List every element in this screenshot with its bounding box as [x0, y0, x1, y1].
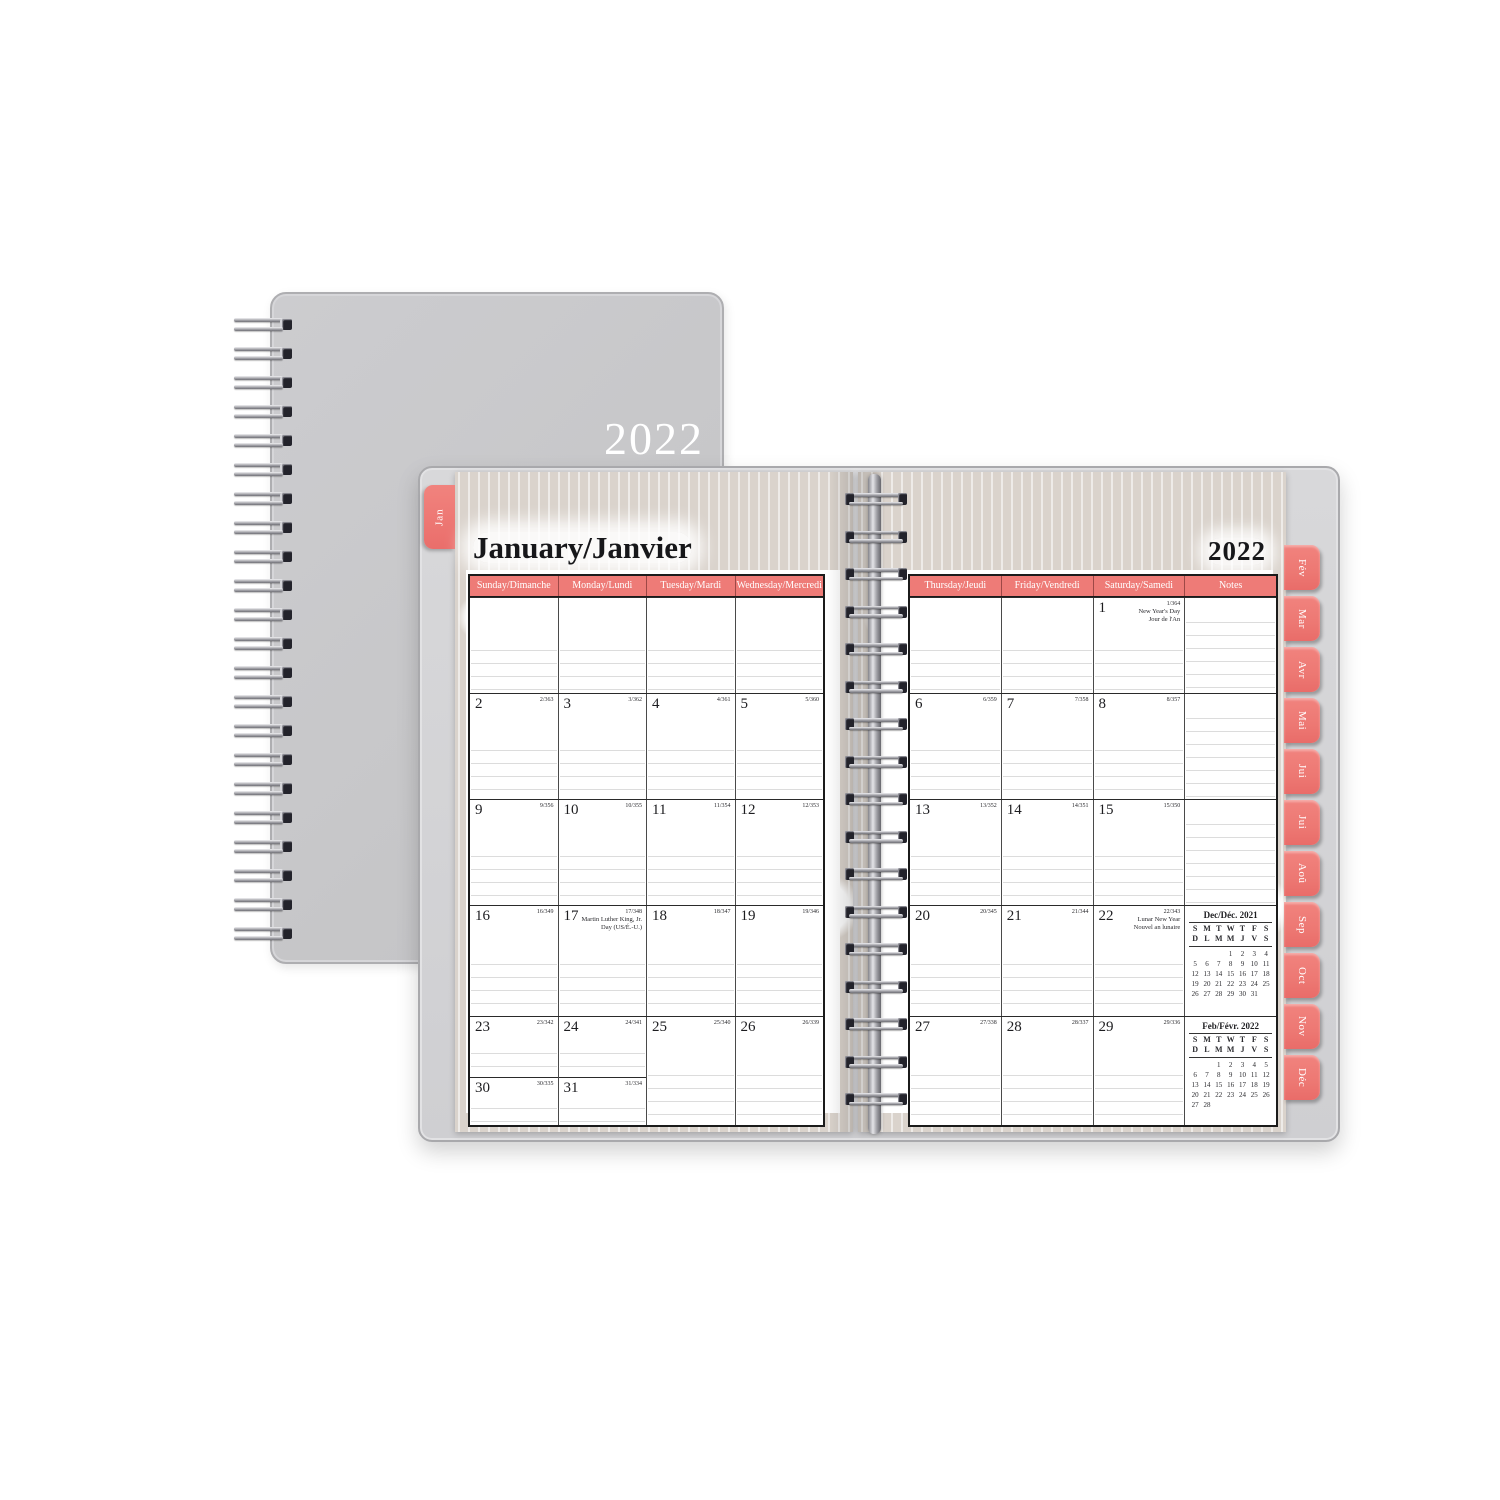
mini-calendar-day: 23 [1237, 979, 1249, 989]
mini-calendar-day: 11 [1248, 1070, 1260, 1080]
spiral-loop [234, 695, 294, 708]
mini-calendar-day: 27 [1189, 1100, 1201, 1110]
mini-calendar-day: 20 [1201, 979, 1213, 989]
date-corner-info: 11/354 [714, 803, 730, 810]
month-tab-label: Jui [1284, 749, 1320, 794]
mini-calendar-day: 16 [1225, 1080, 1237, 1090]
date-corner-info: 14/351 [1072, 803, 1089, 810]
mini-calendar-day: 25 [1260, 979, 1272, 989]
mini-calendar-day: 3 [1237, 1060, 1249, 1070]
spiral-binding-center [845, 466, 907, 1142]
date-number: 7 [1007, 696, 1015, 713]
mini-calendar-day: 22 [1225, 979, 1237, 989]
calendar-week-row: 1616/3491717/348Martin Luther King, Jr.D… [470, 905, 823, 1016]
mini-calendar-day: 7 [1201, 1070, 1213, 1080]
calendar-cell [470, 598, 558, 693]
month-tab-label: Fév [1284, 545, 1320, 590]
calendar-cell: 88/357 [1093, 694, 1185, 799]
calendar-cell: 77/358 [1001, 694, 1093, 799]
calendar-cell [910, 598, 1001, 693]
date-number: 1 [1099, 600, 1107, 617]
date-corner-info: 5/360 [805, 697, 819, 704]
right-page: 2022 Thursday/JeudiFriday/VendrediSaturd… [858, 472, 1286, 1132]
mini-calendar-day: 6 [1201, 959, 1213, 969]
mini-calendar-day: 16 [1237, 969, 1249, 979]
mini-calendar-dow: V [1248, 934, 1260, 944]
calendar-cell: 2828/337 [1001, 1017, 1093, 1125]
spiral-loop [845, 717, 907, 731]
mini-calendar-day: 4 [1248, 1060, 1260, 1070]
mini-calendar-day [1260, 1100, 1272, 1110]
date-number: 12 [741, 802, 756, 819]
mini-calendar-day: 18 [1260, 969, 1272, 979]
calendar-grid-left: Sunday/DimancheMonday/LundiTuesday/Mardi… [468, 574, 825, 1127]
mini-calendar-dow: L [1201, 1045, 1213, 1055]
calendar-week-row: 2727/3382828/3372929/336Feb/Févr. 2022SM… [910, 1016, 1276, 1125]
mini-calendar-day: 2 [1237, 949, 1249, 959]
month-tab-mar: Mar [1284, 596, 1320, 641]
month-tab-nov: Nov [1284, 1004, 1320, 1049]
date-number: 30 [475, 1080, 490, 1097]
month-tabs: FévMarAvrMaiJuiJuiAoûSepOctNovDéc [1284, 545, 1321, 1106]
mini-calendar-day: 25 [1248, 1090, 1260, 1100]
date-corner-info: 29/336 [1164, 1020, 1181, 1027]
calendar-cell: 1313/352 [910, 800, 1001, 905]
date-corner-info: 4/361 [717, 697, 731, 704]
mini-calendar-dow: S [1189, 924, 1201, 934]
spiral-loop [234, 811, 294, 824]
date-corner-info: 1/364New Year's DayJour de l'An [1138, 601, 1180, 623]
spiral-loop [234, 463, 294, 476]
date-number: 8 [1099, 696, 1107, 713]
holiday-label: Martin Luther King, Jr. [582, 916, 642, 924]
mini-calendar-day: 21 [1213, 979, 1225, 989]
day-header: Friday/Vendredi [1001, 576, 1093, 596]
spiral-loop [234, 869, 294, 882]
mini-calendar-day: 29 [1225, 989, 1237, 999]
date-corner-info: 19/346 [802, 909, 819, 916]
spiral-loop [845, 1092, 907, 1106]
mini-calendar-day: 15 [1225, 969, 1237, 979]
mini-calendar-day: 14 [1213, 969, 1225, 979]
mini-calendar-day [1248, 1100, 1260, 1110]
holiday-label: New Year's Day [1138, 608, 1180, 616]
month-tab-sep: Sep [1284, 902, 1320, 947]
mini-calendar-day [1201, 1060, 1213, 1070]
month-tab-aou: Aoû [1284, 851, 1320, 896]
date-corner-info: 18/347 [714, 909, 731, 916]
spiral-loop [234, 927, 294, 940]
notes-cell: Feb/Févr. 2022SMTWTFSDLMMJVS123456789101… [1184, 1017, 1276, 1125]
mini-calendar-dow: M [1213, 934, 1225, 944]
mini-calendar-dow: D [1189, 934, 1201, 944]
mini-calendar-day: 30 [1237, 989, 1249, 999]
month-title: January/Janvier [473, 532, 692, 563]
date-number: 23 [475, 1019, 490, 1036]
spiral-loop [845, 755, 907, 769]
date-number: 31 [564, 1080, 579, 1097]
mini-calendar-day: 9 [1237, 959, 1249, 969]
mini-calendar-dow: V [1248, 1045, 1260, 1055]
open-planner: Jan January/Janvier Sunday/DimancheMonda… [418, 466, 1340, 1142]
mini-calendar-dow: W [1225, 924, 1237, 934]
date-corner-info: 21/344 [1072, 909, 1089, 916]
mini-calendar-dow: W [1225, 1035, 1237, 1045]
date-corner-info: 12/353 [802, 803, 819, 810]
mini-calendar-day: 15 [1213, 1080, 1225, 1090]
calendar-week-row: 2323/3423030/3352424/3413131/3342525/340… [470, 1016, 823, 1125]
calendar-cell: 33/362 [558, 694, 647, 799]
date-corner-info: 25/340 [714, 1020, 731, 1027]
mini-calendar-day: 13 [1189, 1080, 1201, 1090]
spiral-loop [234, 492, 294, 505]
date-number: 17 [564, 908, 579, 925]
spiral-loop [234, 550, 294, 563]
month-tab-label: Aoû [1284, 851, 1320, 896]
mini-calendar-dow: S [1189, 1035, 1201, 1045]
mini-calendar-day: 28 [1201, 1100, 1213, 1110]
date-corner-info: 28/337 [1072, 1020, 1089, 1027]
spiral-loop [845, 942, 907, 956]
calendar-cell: 2020/345 [910, 906, 1001, 1016]
notes-cell [1184, 598, 1276, 693]
mini-calendar-day: 10 [1248, 959, 1260, 969]
mini-calendar-day: 2 [1225, 1060, 1237, 1070]
mini-calendar-day: 26 [1260, 1090, 1272, 1100]
mini-calendar-dow: F [1248, 1035, 1260, 1045]
date-number: 16 [475, 908, 490, 925]
mini-calendar-day [1225, 1100, 1237, 1110]
mini-calendar-day [1213, 1100, 1225, 1110]
mini-calendar-day: 21 [1201, 1090, 1213, 1100]
month-tab-label: Nov [1284, 1004, 1320, 1049]
day-header-row: Thursday/JeudiFriday/VendrediSaturday/Sa… [910, 576, 1276, 597]
mini-calendar-day [1260, 989, 1272, 999]
date-number: 20 [915, 908, 930, 925]
mini-calendar-dow: T [1237, 1035, 1249, 1045]
date-number: 14 [1007, 802, 1022, 819]
mini-calendar-dow: T [1237, 924, 1249, 934]
product-photo: 2022 Jan January/Janvier Sunday/Dimanche… [0, 0, 1500, 1500]
calendar-cell: 1414/351 [1001, 800, 1093, 905]
mini-calendar-dow: M [1213, 1045, 1225, 1055]
calendar-week-row: 11/364New Year's DayJour de l'An [910, 597, 1276, 693]
month-tab-label: Avr [1284, 647, 1320, 692]
date-number: 19 [741, 908, 756, 925]
mini-calendar-day [1213, 949, 1225, 959]
holiday-label: Nouvel an lunaire [1134, 924, 1181, 932]
day-header: Saturday/Samedi [1093, 576, 1185, 596]
month-tab-jui: Jui [1284, 749, 1320, 794]
spiral-loop [845, 492, 907, 506]
calendar-cell: 2626/339 [735, 1017, 824, 1125]
date-number: 26 [741, 1019, 756, 1036]
mini-calendar: Feb/Févr. 2022SMTWTFSDLMMJVS123456789101… [1189, 1019, 1272, 1110]
calendar-cell: 2323/342 [470, 1017, 558, 1077]
month-tab-label: Jui [1284, 800, 1320, 845]
day-header-row: Sunday/DimancheMonday/LundiTuesday/Mardi… [470, 576, 823, 597]
spiral-loop [234, 637, 294, 650]
mini-calendar-day: 7 [1213, 959, 1225, 969]
mini-calendar-day: 12 [1260, 1070, 1272, 1080]
calendar-cell: 11/364New Year's DayJour de l'An [1093, 598, 1185, 693]
date-number: 22 [1099, 908, 1114, 925]
date-number: 29 [1099, 1019, 1114, 1036]
mini-calendar-dow: S [1260, 1045, 1272, 1055]
mini-calendar-dow: S [1260, 934, 1272, 944]
month-tab-label: Déc [1284, 1055, 1320, 1100]
calendar-cell: 2424/341 [559, 1017, 647, 1077]
month-tab-label: Mar [1284, 596, 1320, 641]
date-corner-info: 8/357 [1167, 697, 1181, 704]
month-tab-label: Oct [1284, 953, 1320, 998]
calendar-cell: 2525/340 [646, 1017, 735, 1125]
date-corner-info: 23/342 [537, 1020, 554, 1027]
date-number: 21 [1007, 908, 1022, 925]
day-header: Notes [1184, 576, 1276, 596]
calendar-cell: 1818/347 [646, 906, 735, 1016]
spiral-loop [845, 792, 907, 806]
calendar-cell: 66/359 [910, 694, 1001, 799]
date-corner-info: 26/339 [802, 1020, 819, 1027]
date-number: 9 [475, 802, 483, 819]
date-number: 15 [1099, 802, 1114, 819]
spiral-loop [234, 347, 294, 360]
spiral-loop [845, 680, 907, 694]
left-page: January/Janvier Sunday/DimancheMonday/Lu… [455, 472, 853, 1132]
spiral-loop [234, 666, 294, 679]
mini-calendar-day: 22 [1213, 1090, 1225, 1100]
month-tab-jui: Jui [1284, 800, 1320, 845]
date-number: 18 [652, 908, 667, 925]
calendar-cell: 2727/338 [910, 1017, 1001, 1125]
calendar-cell: 99/356 [470, 800, 558, 905]
mini-calendar-dow: D [1189, 1045, 1201, 1055]
calendar-cell: 1111/354 [646, 800, 735, 905]
mini-calendar-day: 31 [1248, 989, 1260, 999]
mini-calendar-day: 8 [1213, 1070, 1225, 1080]
mini-calendar-day: 6 [1189, 1070, 1201, 1080]
mini-calendar-day: 9 [1225, 1070, 1237, 1080]
tab-january-label: Jan [424, 485, 455, 549]
mini-calendar-day: 28 [1213, 989, 1225, 999]
calendar-cell: 2929/336 [1093, 1017, 1185, 1125]
calendar-grid-right: Thursday/JeudiFriday/VendrediSaturday/Sa… [908, 574, 1278, 1127]
calendar-cell: 2222/343Lunar New YearNouvel an lunaire [1093, 906, 1185, 1016]
date-corner-info: 3/362 [628, 697, 642, 704]
mini-calendar-day: 27 [1201, 989, 1213, 999]
mini-calendar-day: 20 [1189, 1090, 1201, 1100]
mini-calendar-dow: J [1237, 934, 1249, 944]
date-number: 28 [1007, 1019, 1022, 1036]
calendar-cell [735, 598, 824, 693]
holiday-label: Jour de l'An [1138, 616, 1180, 624]
day-header: Thursday/Jeudi [910, 576, 1001, 596]
calendar-cell: 1010/355 [558, 800, 647, 905]
mini-calendar-dow: M [1225, 1045, 1237, 1055]
month-tab-label: Mai [1284, 698, 1320, 743]
mini-calendar-day: 23 [1225, 1090, 1237, 1100]
mini-calendar-day [1189, 949, 1201, 959]
mini-calendar-day: 19 [1189, 979, 1201, 989]
month-tab-avr: Avr [1284, 647, 1320, 692]
spiral-loop [845, 1055, 907, 1069]
date-corner-info: 10/355 [625, 803, 642, 810]
mini-calendar-day: 17 [1248, 969, 1260, 979]
mini-calendar-day: 17 [1237, 1080, 1249, 1090]
month-tab-mai: Mai [1284, 698, 1320, 743]
holiday-label: Day (US/É.-U.) [582, 924, 642, 932]
day-header: Monday/Lundi [558, 576, 647, 596]
holiday-label: Lunar New Year [1134, 916, 1181, 924]
notes-cell: Dec/Déc. 2021SMTWTFSDLMMJVS1234567891011… [1184, 906, 1276, 1016]
date-number: 11 [652, 802, 666, 819]
spiral-loop [845, 567, 907, 581]
mini-calendar-dow: M [1225, 934, 1237, 944]
spiral-loop [234, 521, 294, 534]
date-number: 3 [564, 696, 572, 713]
date-corner-info: 31/334 [625, 1081, 642, 1088]
mini-calendar-dow: M [1201, 924, 1213, 934]
date-number: 24 [564, 1019, 579, 1036]
calendar-cell: 2424/3413131/334 [558, 1017, 647, 1125]
mini-calendar-day: 5 [1260, 1060, 1272, 1070]
date-number: 5 [741, 696, 749, 713]
date-corner-info: 9/356 [540, 803, 554, 810]
date-number: 25 [652, 1019, 667, 1036]
mini-calendar-day: 24 [1237, 1090, 1249, 1100]
spiral-loop [234, 840, 294, 853]
calendar-cell: 1616/349 [470, 906, 558, 1016]
month-tab-dec: Déc [1284, 1055, 1320, 1100]
mini-calendar-title: Dec/Déc. 2021 [1189, 908, 1272, 922]
date-number: 10 [564, 802, 579, 819]
spiral-loop [845, 867, 907, 881]
calendar-cell: 55/360 [735, 694, 824, 799]
mini-calendar-dow: L [1201, 934, 1213, 944]
calendar-cell [646, 598, 735, 693]
mini-calendar-day: 18 [1248, 1080, 1260, 1090]
date-corner-info: 17/348Martin Luther King, Jr.Day (US/É.-… [582, 909, 642, 931]
spiral-loop [234, 405, 294, 418]
spiral-loop [234, 579, 294, 592]
mini-calendar-day [1201, 949, 1213, 959]
mini-calendar-day: 24 [1248, 979, 1260, 989]
date-number: 2 [475, 696, 483, 713]
mini-calendar-dow: T [1213, 1035, 1225, 1045]
calendar-cell: 1212/353 [735, 800, 824, 905]
mini-calendar-dow: S [1260, 924, 1272, 934]
date-number: 27 [915, 1019, 930, 1036]
day-header: Tuesday/Mardi [646, 576, 735, 596]
spiral-loop [845, 905, 907, 919]
mini-calendar-day: 19 [1260, 1080, 1272, 1090]
notes-cell [1184, 694, 1276, 799]
month-tab-oct: Oct [1284, 953, 1320, 998]
calendar-week-row: 2020/3452121/3442222/343Lunar New YearNo… [910, 905, 1276, 1016]
calendar-cell: 2323/3423030/335 [470, 1017, 558, 1125]
spiral-loop [234, 608, 294, 621]
spiral-loop [234, 376, 294, 389]
spiral-loop [234, 782, 294, 795]
spiral-loop [845, 830, 907, 844]
mini-calendar-day: 26 [1189, 989, 1201, 999]
calendar-cell: 1515/350 [1093, 800, 1185, 905]
spiral-loop [234, 898, 294, 911]
mini-calendar-day: 10 [1237, 1070, 1249, 1080]
date-number: 6 [915, 696, 923, 713]
date-number: 13 [915, 802, 930, 819]
mini-calendar-day: 3 [1248, 949, 1260, 959]
mini-calendar-day [1237, 1100, 1249, 1110]
date-corner-info: 20/345 [980, 909, 997, 916]
mini-calendar-day: 1 [1225, 949, 1237, 959]
date-corner-info: 7/358 [1075, 697, 1089, 704]
calendar-cell: 3131/334 [559, 1077, 647, 1124]
mini-calendar-day: 14 [1201, 1080, 1213, 1090]
mini-calendar-day: 13 [1201, 969, 1213, 979]
date-corner-info: 6/359 [983, 697, 997, 704]
spiral-binding-left [234, 318, 304, 948]
mini-calendar-day: 8 [1225, 959, 1237, 969]
day-header: Sunday/Dimanche [470, 576, 558, 596]
page-year: 2022 [1208, 538, 1266, 565]
calendar-cell: 44/361 [646, 694, 735, 799]
month-tab-fev: Fév [1284, 545, 1320, 590]
mini-calendar: Dec/Déc. 2021SMTWTFSDLMMJVS1234567891011… [1189, 908, 1272, 999]
calendar-cell: 22/363 [470, 694, 558, 799]
date-number: 4 [652, 696, 660, 713]
date-corner-info: 16/349 [537, 909, 554, 916]
calendar-week-row: 66/35977/35888/357 [910, 693, 1276, 799]
month-tab-label: Sep [1284, 902, 1320, 947]
date-corner-info: 13/352 [980, 803, 997, 810]
spiral-loop [234, 318, 294, 331]
mini-calendar-dow: T [1213, 924, 1225, 934]
calendar-cell [558, 598, 647, 693]
calendar-week-row: 99/3561010/3551111/3541212/353 [470, 799, 823, 905]
tab-january: Jan [424, 485, 455, 549]
mini-calendar-title: Feb/Févr. 2022 [1189, 1019, 1272, 1033]
spiral-loop [845, 605, 907, 619]
calendar-cell: 3030/335 [470, 1077, 558, 1124]
calendar-cell: 1919/346 [735, 906, 824, 1016]
spiral-loop [845, 1017, 907, 1031]
mini-calendar-day: 12 [1189, 969, 1201, 979]
cover-year: 2022 [604, 412, 704, 465]
mini-calendar-day: 1 [1213, 1060, 1225, 1070]
mini-calendar-day: 11 [1260, 959, 1272, 969]
day-header: Wednesday/Mercredi [735, 576, 824, 596]
calendar-cell: 1717/348Martin Luther King, Jr.Day (US/É… [558, 906, 647, 1016]
mini-calendar-day: 4 [1260, 949, 1272, 959]
mini-calendar-dow: F [1248, 924, 1260, 934]
spiral-loop [845, 642, 907, 656]
mini-calendar-dow: S [1260, 1035, 1272, 1045]
calendar-week-row [470, 597, 823, 693]
calendar-week-row: 22/36333/36244/36155/360 [470, 693, 823, 799]
date-corner-info: 24/341 [625, 1020, 642, 1027]
date-corner-info: 27/338 [980, 1020, 997, 1027]
mini-calendar-dow: J [1237, 1045, 1249, 1055]
notes-cell [1184, 800, 1276, 905]
mini-calendar-dow: M [1201, 1035, 1213, 1045]
date-corner-info: 15/350 [1164, 803, 1181, 810]
spiral-loop [845, 980, 907, 994]
date-corner-info: 2/363 [540, 697, 554, 704]
spiral-loop [845, 530, 907, 544]
calendar-week-row: 1313/3521414/3511515/350 [910, 799, 1276, 905]
